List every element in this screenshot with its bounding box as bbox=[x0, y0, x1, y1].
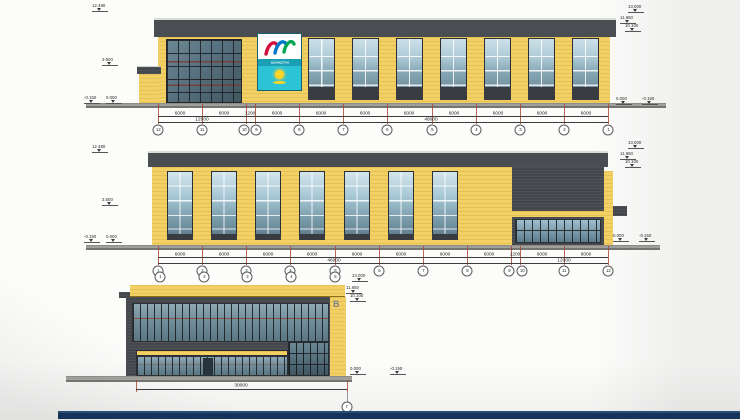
ground-line bbox=[66, 376, 352, 382]
entrance-door bbox=[203, 358, 213, 376]
slide-footer-bar bbox=[58, 411, 740, 419]
level-marker: 0.000 bbox=[350, 365, 368, 375]
spandrel-band bbox=[132, 342, 288, 350]
axis-bubble: 4 bbox=[286, 272, 297, 283]
upper-glazing bbox=[132, 303, 329, 342]
dimension-line bbox=[136, 389, 347, 390]
axis-bubble: 2 bbox=[199, 272, 210, 283]
recessed-glazing bbox=[288, 342, 329, 376]
axis-bubble: 1 bbox=[155, 272, 166, 283]
drawing-sheet: ҚАЗАҚСТАН 6000 6000 1200 6000 6000 6000 … bbox=[0, 0, 740, 420]
axis-bubble: 3 bbox=[242, 272, 253, 283]
dimension-total: 30000 bbox=[234, 383, 247, 388]
corner-pillar bbox=[330, 297, 346, 377]
corner-letter: В bbox=[333, 299, 340, 309]
axis-bubble: 5 bbox=[330, 272, 341, 283]
level-marker: 10.100 bbox=[350, 292, 371, 302]
elevation-3: 1 2 3 4 5 В 30000 Г 13.000 11.650 10.100… bbox=[0, 0, 740, 420]
parapet-band bbox=[130, 285, 345, 297]
level-marker: 13.000 bbox=[352, 272, 373, 282]
level-marker: -0.150 bbox=[390, 365, 410, 375]
